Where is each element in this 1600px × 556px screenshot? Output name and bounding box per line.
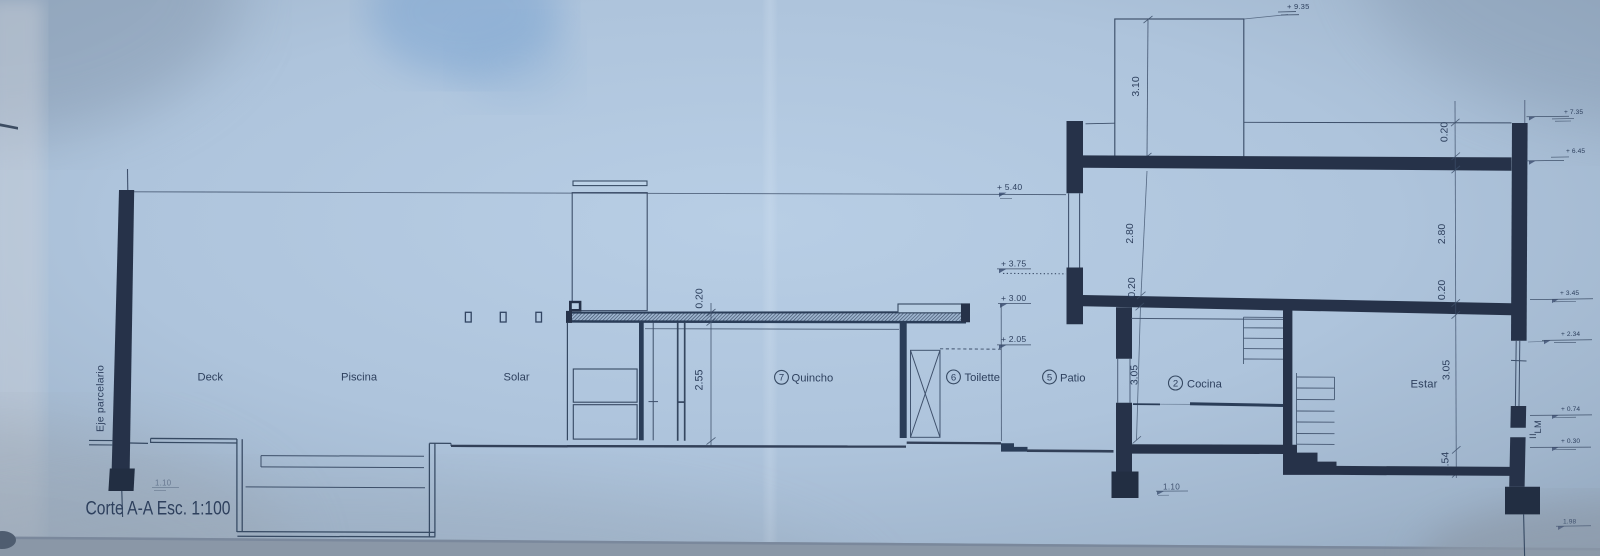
svg-text:Piscina: Piscina <box>341 372 378 384</box>
svg-text:0.20: 0.20 <box>1440 122 1451 142</box>
svg-text:7: 7 <box>779 373 784 384</box>
svg-text:Corte A-A Esc. 1:100: Corte A-A Esc. 1:100 <box>86 498 231 520</box>
svg-text:Cocina: Cocina <box>1187 379 1223 391</box>
svg-text:2.80: 2.80 <box>1437 224 1448 244</box>
svg-text:+ 3.75: + 3.75 <box>1001 259 1026 269</box>
svg-text:+ 0.74: + 0.74 <box>1561 406 1580 413</box>
svg-text:Toilette: Toilette <box>965 372 1000 384</box>
svg-text:Solar: Solar <box>504 372 530 384</box>
svg-text:+ 7.35: + 7.35 <box>1564 109 1583 116</box>
svg-text:1.98: 1.98 <box>1563 518 1576 525</box>
svg-text:0.20: 0.20 <box>695 288 706 308</box>
svg-text:+ 6.45: + 6.45 <box>1566 148 1585 155</box>
svg-text:+ 9.35: + 9.35 <box>1287 2 1310 11</box>
svg-text:0.20: 0.20 <box>1437 280 1448 300</box>
svg-text:+ 0.30: + 0.30 <box>1561 438 1580 445</box>
svg-text:1.10: 1.10 <box>155 478 172 487</box>
svg-text:+ 3.45: + 3.45 <box>1560 290 1579 297</box>
svg-text:6: 6 <box>951 372 956 383</box>
svg-text:2.55: 2.55 <box>694 369 706 390</box>
svg-text:3.05: 3.05 <box>1442 360 1453 380</box>
svg-text:+ 5.40: + 5.40 <box>997 182 1022 192</box>
svg-text:Patio: Patio <box>1060 372 1086 384</box>
svg-text:+ 2.34: + 2.34 <box>1561 331 1580 338</box>
svg-text:5: 5 <box>1047 372 1052 383</box>
svg-text:3.05: 3.05 <box>1130 365 1141 385</box>
svg-text:3.10: 3.10 <box>1131 76 1142 96</box>
svg-text:Estar: Estar <box>1411 378 1438 390</box>
svg-text:+ 3.00: + 3.00 <box>1001 293 1026 303</box>
svg-text:Quincho: Quincho <box>792 373 834 385</box>
svg-text:LM: LM <box>1532 420 1543 434</box>
svg-text:1.10: 1.10 <box>1163 482 1180 491</box>
svg-text:+ 2.05: + 2.05 <box>1001 334 1026 344</box>
svg-text:Eje parcelario: Eje parcelario <box>95 365 107 432</box>
svg-text:0.20: 0.20 <box>1127 277 1138 297</box>
svg-text:2.80: 2.80 <box>1125 223 1136 243</box>
svg-text:Deck: Deck <box>198 371 224 383</box>
svg-text:2: 2 <box>1173 378 1178 389</box>
